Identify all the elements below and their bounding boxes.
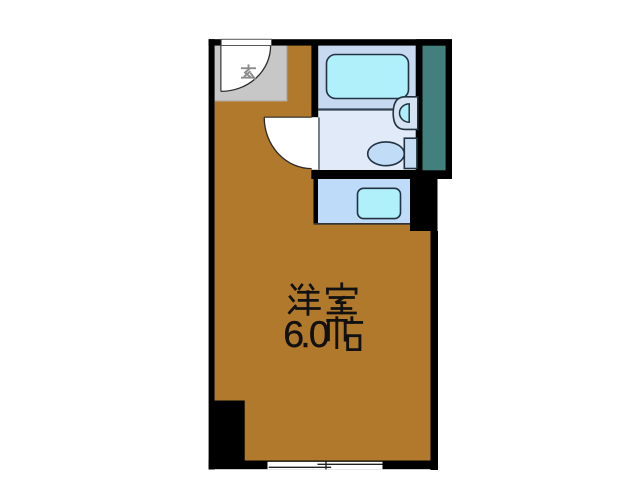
svg-text:6.0: 6.0	[283, 313, 329, 355]
